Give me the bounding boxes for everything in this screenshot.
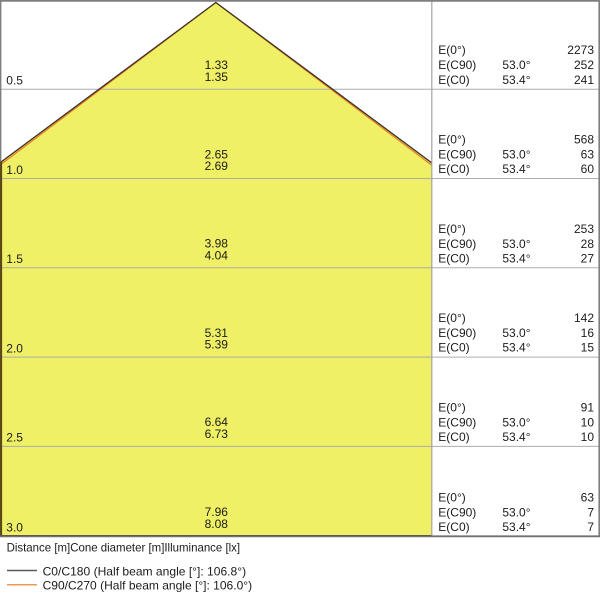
svg-text:53.4°: 53.4° [502, 341, 530, 355]
svg-text:E(C0): E(C0) [438, 520, 469, 534]
svg-text:E(0°): E(0°) [438, 222, 465, 236]
svg-text:E(C90): E(C90) [438, 237, 476, 251]
svg-text:E(0°): E(0°) [438, 133, 465, 147]
svg-text:53.4°: 53.4° [502, 162, 530, 176]
svg-text:15: 15 [581, 341, 595, 355]
svg-text:16: 16 [581, 326, 595, 340]
svg-text:53.4°: 53.4° [502, 251, 530, 265]
svg-text:C90/C270 (Half beam angle [°]:: C90/C270 (Half beam angle [°]: 106.0°) [43, 579, 253, 593]
svg-text:2.5: 2.5 [6, 431, 23, 445]
svg-text:1.0: 1.0 [6, 163, 23, 177]
svg-text:27: 27 [581, 251, 595, 265]
svg-text:E(0°): E(0°) [438, 43, 465, 57]
svg-text:53.0°: 53.0° [502, 148, 530, 162]
svg-text:53.0°: 53.0° [502, 237, 530, 251]
svg-text:10: 10 [581, 415, 595, 429]
svg-text:53.4°: 53.4° [502, 520, 530, 534]
svg-text:4.04: 4.04 [205, 248, 229, 262]
svg-text:C0/C180 (Half beam angle [°]:: C0/C180 (Half beam angle [°]: 106.8°) [43, 565, 247, 579]
svg-text:E(C90): E(C90) [438, 415, 476, 429]
svg-text:253: 253 [574, 222, 594, 236]
svg-text:E(C90): E(C90) [438, 148, 476, 162]
svg-text:28: 28 [581, 237, 595, 251]
svg-text:E(C90): E(C90) [438, 326, 476, 340]
svg-text:63: 63 [581, 148, 595, 162]
svg-text:7: 7 [587, 520, 594, 534]
svg-text:Distance [m]Cone diameter [m]I: Distance [m]Cone diameter [m]Illuminance… [7, 541, 241, 555]
svg-text:E(0°): E(0°) [438, 311, 465, 325]
svg-text:53.4°: 53.4° [502, 73, 530, 87]
svg-text:91: 91 [581, 400, 595, 414]
svg-text:E(C0): E(C0) [438, 341, 469, 355]
svg-text:2.69: 2.69 [205, 159, 229, 173]
svg-text:53.0°: 53.0° [502, 415, 530, 429]
svg-text:53.0°: 53.0° [502, 58, 530, 72]
svg-text:252: 252 [574, 58, 594, 72]
svg-text:1.5: 1.5 [6, 252, 23, 266]
svg-text:53.0°: 53.0° [502, 505, 530, 519]
svg-text:1.35: 1.35 [205, 70, 229, 84]
svg-text:241: 241 [574, 73, 594, 87]
svg-text:E(C90): E(C90) [438, 58, 476, 72]
svg-text:8.08: 8.08 [205, 517, 229, 531]
svg-text:E(C0): E(C0) [438, 430, 469, 444]
svg-text:6.73: 6.73 [205, 427, 229, 441]
svg-text:3.0: 3.0 [6, 521, 23, 535]
svg-text:7: 7 [587, 505, 594, 519]
svg-text:E(C90): E(C90) [438, 505, 476, 519]
svg-text:E(C0): E(C0) [438, 251, 469, 265]
svg-text:2273: 2273 [567, 43, 594, 57]
svg-text:142: 142 [574, 311, 594, 325]
svg-text:2.0: 2.0 [6, 341, 23, 355]
svg-text:E(0°): E(0°) [438, 490, 465, 504]
svg-text:53.4°: 53.4° [502, 430, 530, 444]
svg-text:5.39: 5.39 [205, 338, 229, 352]
svg-text:0.5: 0.5 [6, 74, 23, 88]
svg-text:60: 60 [581, 162, 595, 176]
svg-text:53.0°: 53.0° [502, 326, 530, 340]
svg-text:E(0°): E(0°) [438, 400, 465, 414]
svg-text:E(C0): E(C0) [438, 73, 469, 87]
svg-text:10: 10 [581, 430, 595, 444]
svg-text:E(C0): E(C0) [438, 162, 469, 176]
svg-text:568: 568 [574, 133, 594, 147]
svg-text:63: 63 [581, 490, 595, 504]
